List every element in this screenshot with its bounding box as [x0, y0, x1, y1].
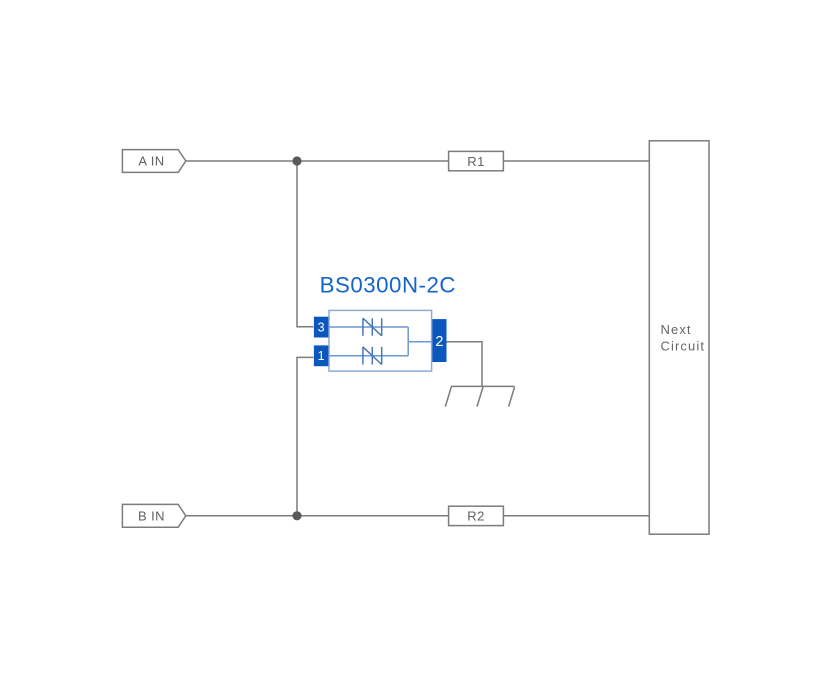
svg-text:Next: Next — [661, 322, 692, 337]
svg-text:1: 1 — [318, 349, 325, 363]
svg-text:3: 3 — [318, 321, 325, 335]
svg-text:R2: R2 — [467, 509, 484, 524]
svg-text:Circuit: Circuit — [661, 338, 706, 353]
svg-text:A IN: A IN — [138, 154, 164, 169]
svg-text:BS0300N-2C: BS0300N-2C — [320, 273, 456, 298]
svg-text:R1: R1 — [467, 154, 484, 169]
svg-text:B IN: B IN — [138, 508, 165, 523]
svg-text:2: 2 — [435, 334, 443, 350]
